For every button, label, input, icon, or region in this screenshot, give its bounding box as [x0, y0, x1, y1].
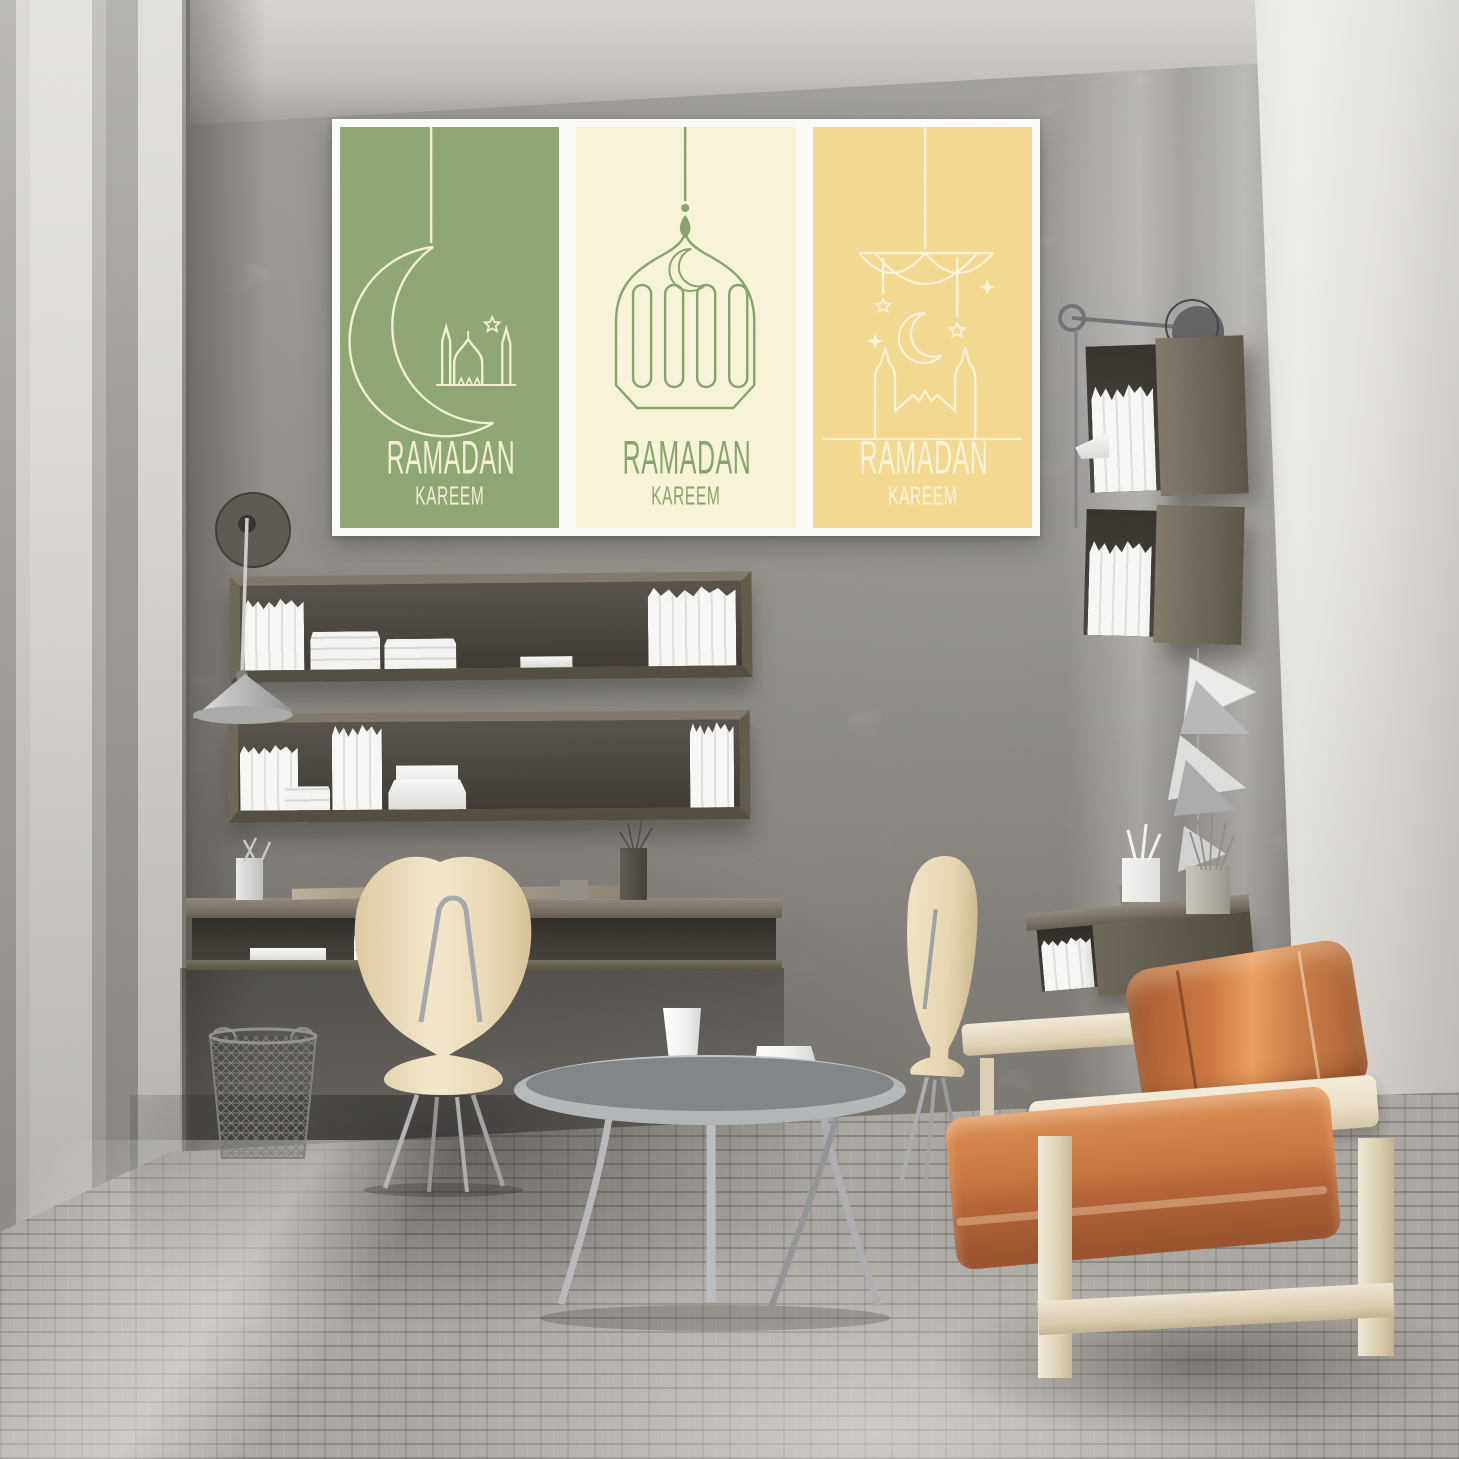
twig-vase [620, 848, 647, 900]
poster-subtitle: KAREEM [651, 483, 720, 509]
white-leaves-icon [1116, 820, 1168, 862]
poster-title: RAMADAN [859, 435, 988, 482]
box-shelf-upper [1085, 335, 1248, 498]
book-row [648, 585, 737, 666]
sofa-front-post-right [1358, 1138, 1394, 1356]
box-side-panel [1153, 505, 1245, 645]
book-row [332, 724, 383, 810]
sofa [950, 940, 1459, 1440]
book-row [690, 721, 735, 807]
poster-caption: RAMADAN KAREEM [576, 437, 795, 509]
box-interior [1086, 344, 1163, 492]
poster-subtitle: KAREEM [888, 483, 957, 509]
white-boxes [388, 779, 466, 810]
poster-title: RAMADAN [387, 435, 516, 482]
box-interior [1083, 509, 1158, 637]
twigs-icon [612, 818, 658, 852]
book-stack [284, 786, 330, 810]
sofa-front-post-left [1038, 1136, 1072, 1378]
wire-basket [196, 1018, 330, 1166]
poster-panel-yellow: RAMADAN KAREEM [813, 127, 1032, 528]
book-flat [520, 656, 572, 668]
box-shelf-lower [1083, 503, 1245, 645]
interior-scene: RAMADAN KAREEM RAMADAN KAREEM [0, 0, 1459, 1459]
book-flat [250, 948, 326, 960]
coffee-table [505, 1000, 925, 1335]
sofa-lower-rail [1037, 1283, 1394, 1336]
ramadan-poster: RAMADAN KAREEM RAMADAN KAREEM [332, 119, 1040, 536]
brush-pot [1186, 866, 1230, 914]
poster-caption: RAMADAN KAREEM [340, 437, 559, 509]
book-row [1087, 539, 1151, 637]
book-stack [310, 631, 380, 670]
white-planter [1122, 858, 1160, 902]
poster-caption: RAMADAN KAREEM [813, 437, 1032, 509]
poster-title: RAMADAN [623, 435, 752, 482]
poster-panel-cream: RAMADAN KAREEM [576, 127, 795, 528]
book-stack [384, 638, 456, 669]
poster-subtitle: KAREEM [415, 483, 484, 509]
scissors-icon [230, 834, 276, 862]
left-sconce-lamp [185, 478, 315, 750]
pen-cup [236, 858, 263, 900]
poster-panel-green: RAMADAN KAREEM [340, 127, 559, 528]
brushes-icon [1180, 812, 1240, 870]
sofa-seat-cushion [944, 1085, 1342, 1270]
box-side-panel [1155, 335, 1248, 496]
